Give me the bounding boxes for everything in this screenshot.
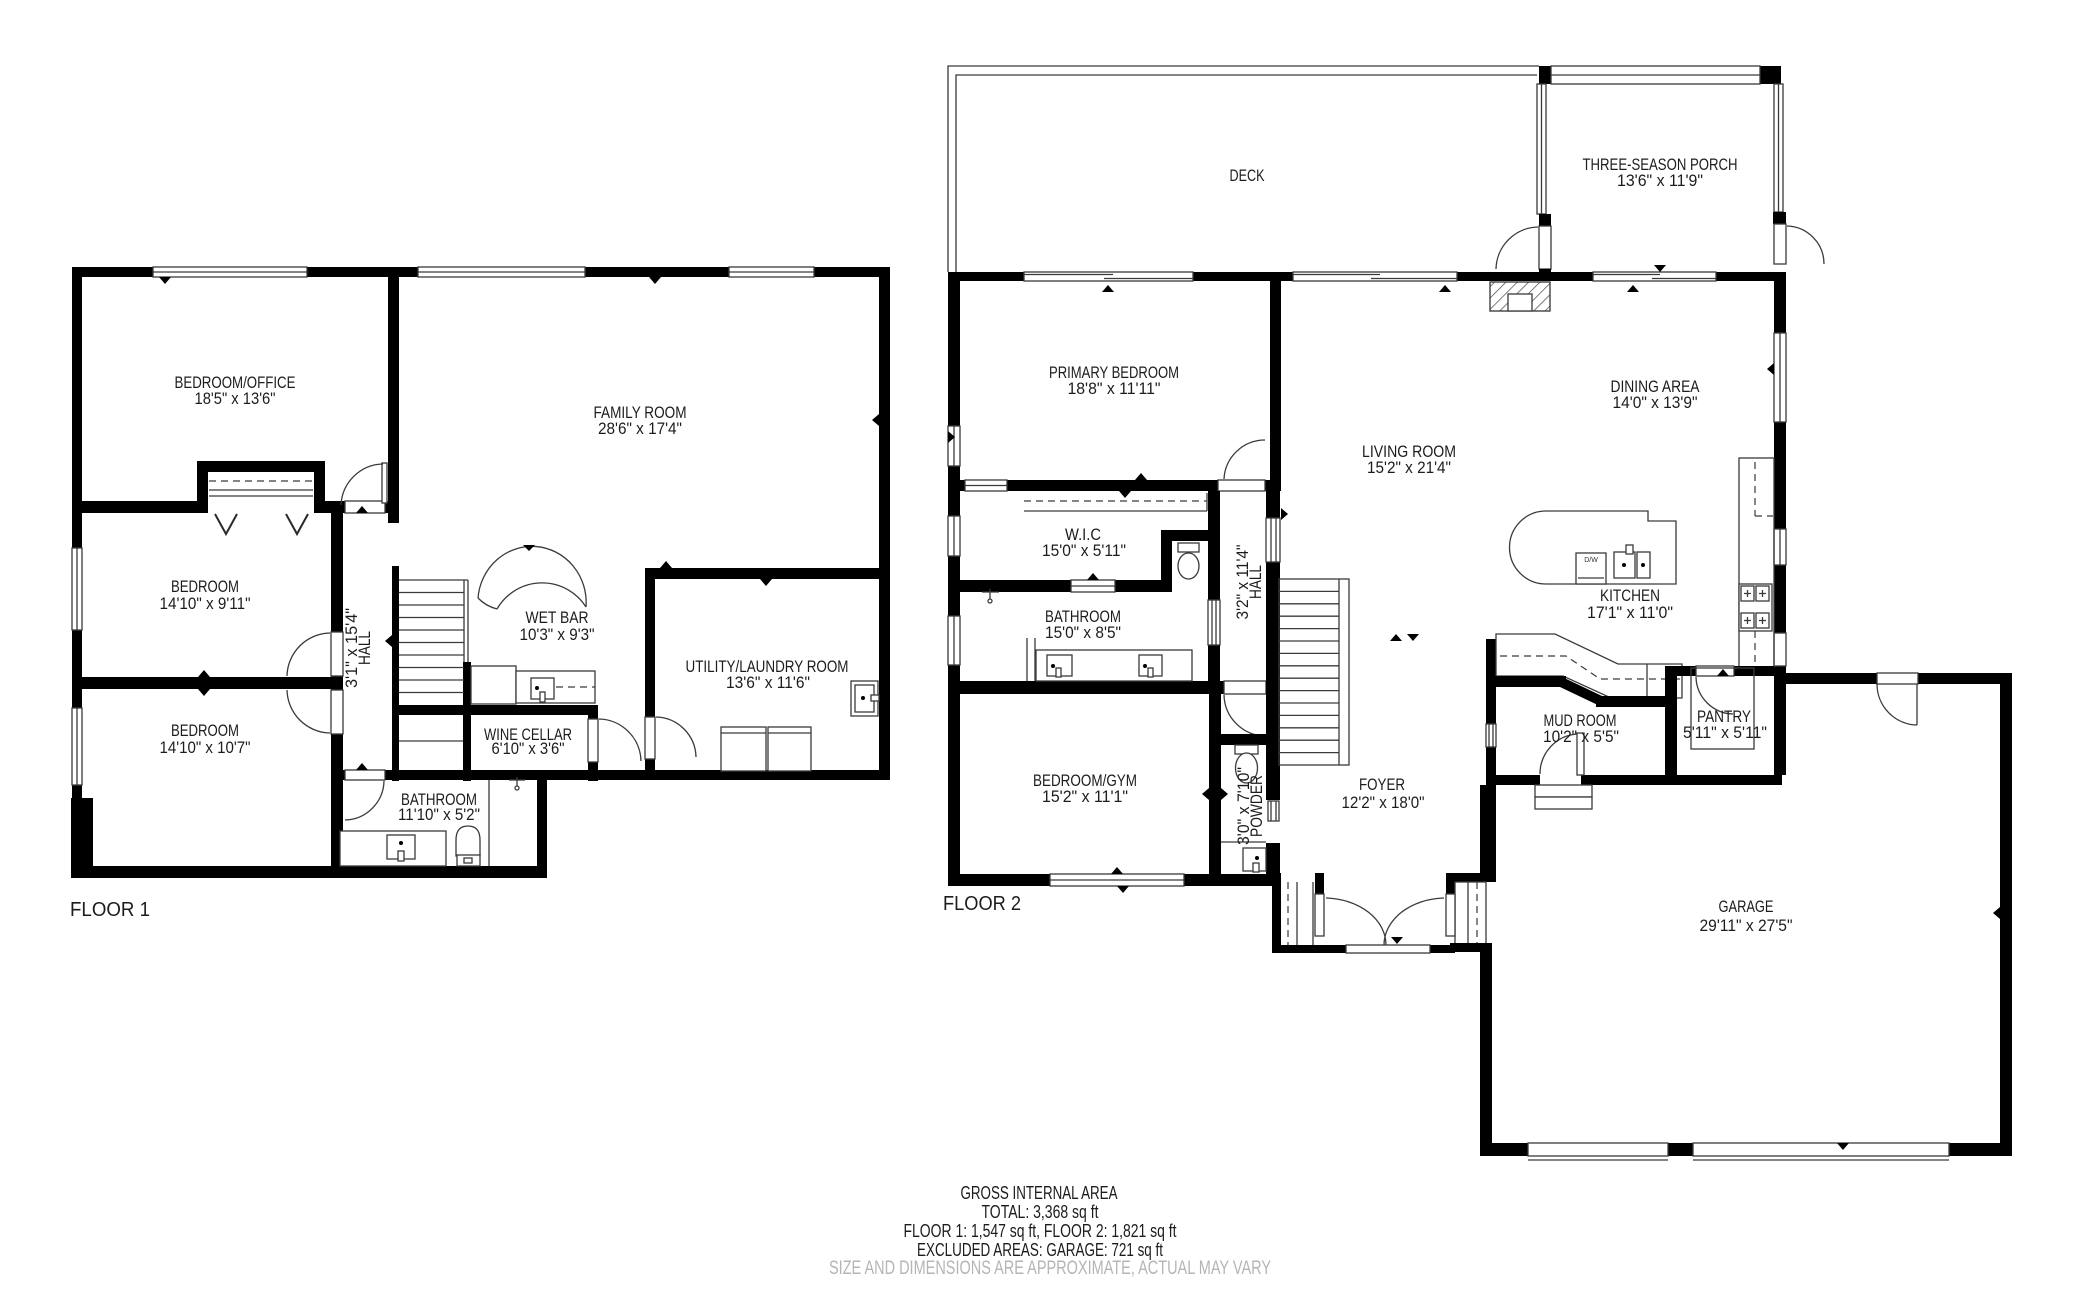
svg-text:14'0" x 13'9": 14'0" x 13'9" [1613, 394, 1698, 412]
svg-text:EXCLUDED AREAS: GARAGE: 721 sq: EXCLUDED AREAS: GARAGE: 721 sq ft [917, 1240, 1163, 1260]
svg-text:5'11" x 5'11": 5'11" x 5'11" [1683, 724, 1767, 742]
svg-text:15'2" x 11'1": 15'2" x 11'1" [1042, 788, 1128, 806]
svg-text:18'5" x 13'6": 18'5" x 13'6" [195, 390, 276, 408]
svg-text:15'2" x 21'4": 15'2" x 21'4" [1367, 459, 1451, 477]
svg-text:13'6" x 11'9": 13'6" x 11'9" [1617, 172, 1703, 190]
svg-text:FLOOR 1: 1,547 sq ft, FLOOR 2:: FLOOR 1: 1,547 sq ft, FLOOR 2: 1,821 sq … [904, 1221, 1177, 1241]
svg-text:15'0" x 5'11": 15'0" x 5'11" [1042, 542, 1126, 560]
svg-text:28'6" x 17'4": 28'6" x 17'4" [598, 420, 682, 438]
svg-text:13'6" x 11'6": 13'6" x 11'6" [726, 674, 810, 692]
svg-text:6'10" x 3'6": 6'10" x 3'6" [492, 740, 565, 758]
svg-text:10'3" x 9'3": 10'3" x 9'3" [520, 626, 595, 644]
svg-text:BEDROOM: BEDROOM [171, 578, 239, 596]
svg-text:D/W: D/W [1584, 557, 1598, 564]
svg-text:TOTAL: 3,368 sq ft: TOTAL: 3,368 sq ft [982, 1202, 1099, 1222]
svg-text:14'10" x 9'11": 14'10" x 9'11" [160, 595, 251, 613]
svg-text:15'0" x 8'5": 15'0" x 8'5" [1045, 624, 1121, 642]
svg-text:SIZE AND DIMENSIONS ARE APPROX: SIZE AND DIMENSIONS ARE APPROXIMATE, ACT… [829, 1258, 1271, 1279]
svg-text:17'1" x 11'0": 17'1" x 11'0" [1587, 604, 1673, 622]
svg-text:FLOOR 1: FLOOR 1 [70, 899, 150, 921]
svg-text:FOYER: FOYER [1359, 776, 1405, 794]
svg-text:11'10" x 5'2": 11'10" x 5'2" [398, 806, 480, 824]
svg-text:12'2" x 18'0": 12'2" x 18'0" [1342, 794, 1425, 812]
svg-text:BEDROOM: BEDROOM [171, 722, 239, 740]
svg-text:3'1" x 15'4": 3'1" x 15'4" [343, 608, 361, 688]
svg-text:KITCHEN: KITCHEN [1600, 587, 1660, 605]
svg-text:14'10" x 10'7": 14'10" x 10'7" [160, 739, 251, 757]
svg-text:18'8" x 11'11": 18'8" x 11'11" [1068, 380, 1161, 398]
svg-text:DECK: DECK [1230, 167, 1265, 185]
svg-text:3'0" x 7'10": 3'0" x 7'10" [1235, 767, 1253, 845]
svg-text:GARAGE: GARAGE [1719, 898, 1774, 916]
svg-text:FLOOR 2: FLOOR 2 [943, 893, 1021, 915]
svg-text:3'2" x 11'4": 3'2" x 11'4" [1234, 544, 1252, 619]
svg-text:29'11" x 27'5": 29'11" x 27'5" [1700, 917, 1793, 935]
svg-text:WET BAR: WET BAR [526, 609, 589, 627]
svg-text:10'2" x 5'5": 10'2" x 5'5" [1543, 728, 1619, 746]
svg-text:GROSS INTERNAL AREA: GROSS INTERNAL AREA [961, 1183, 1118, 1203]
